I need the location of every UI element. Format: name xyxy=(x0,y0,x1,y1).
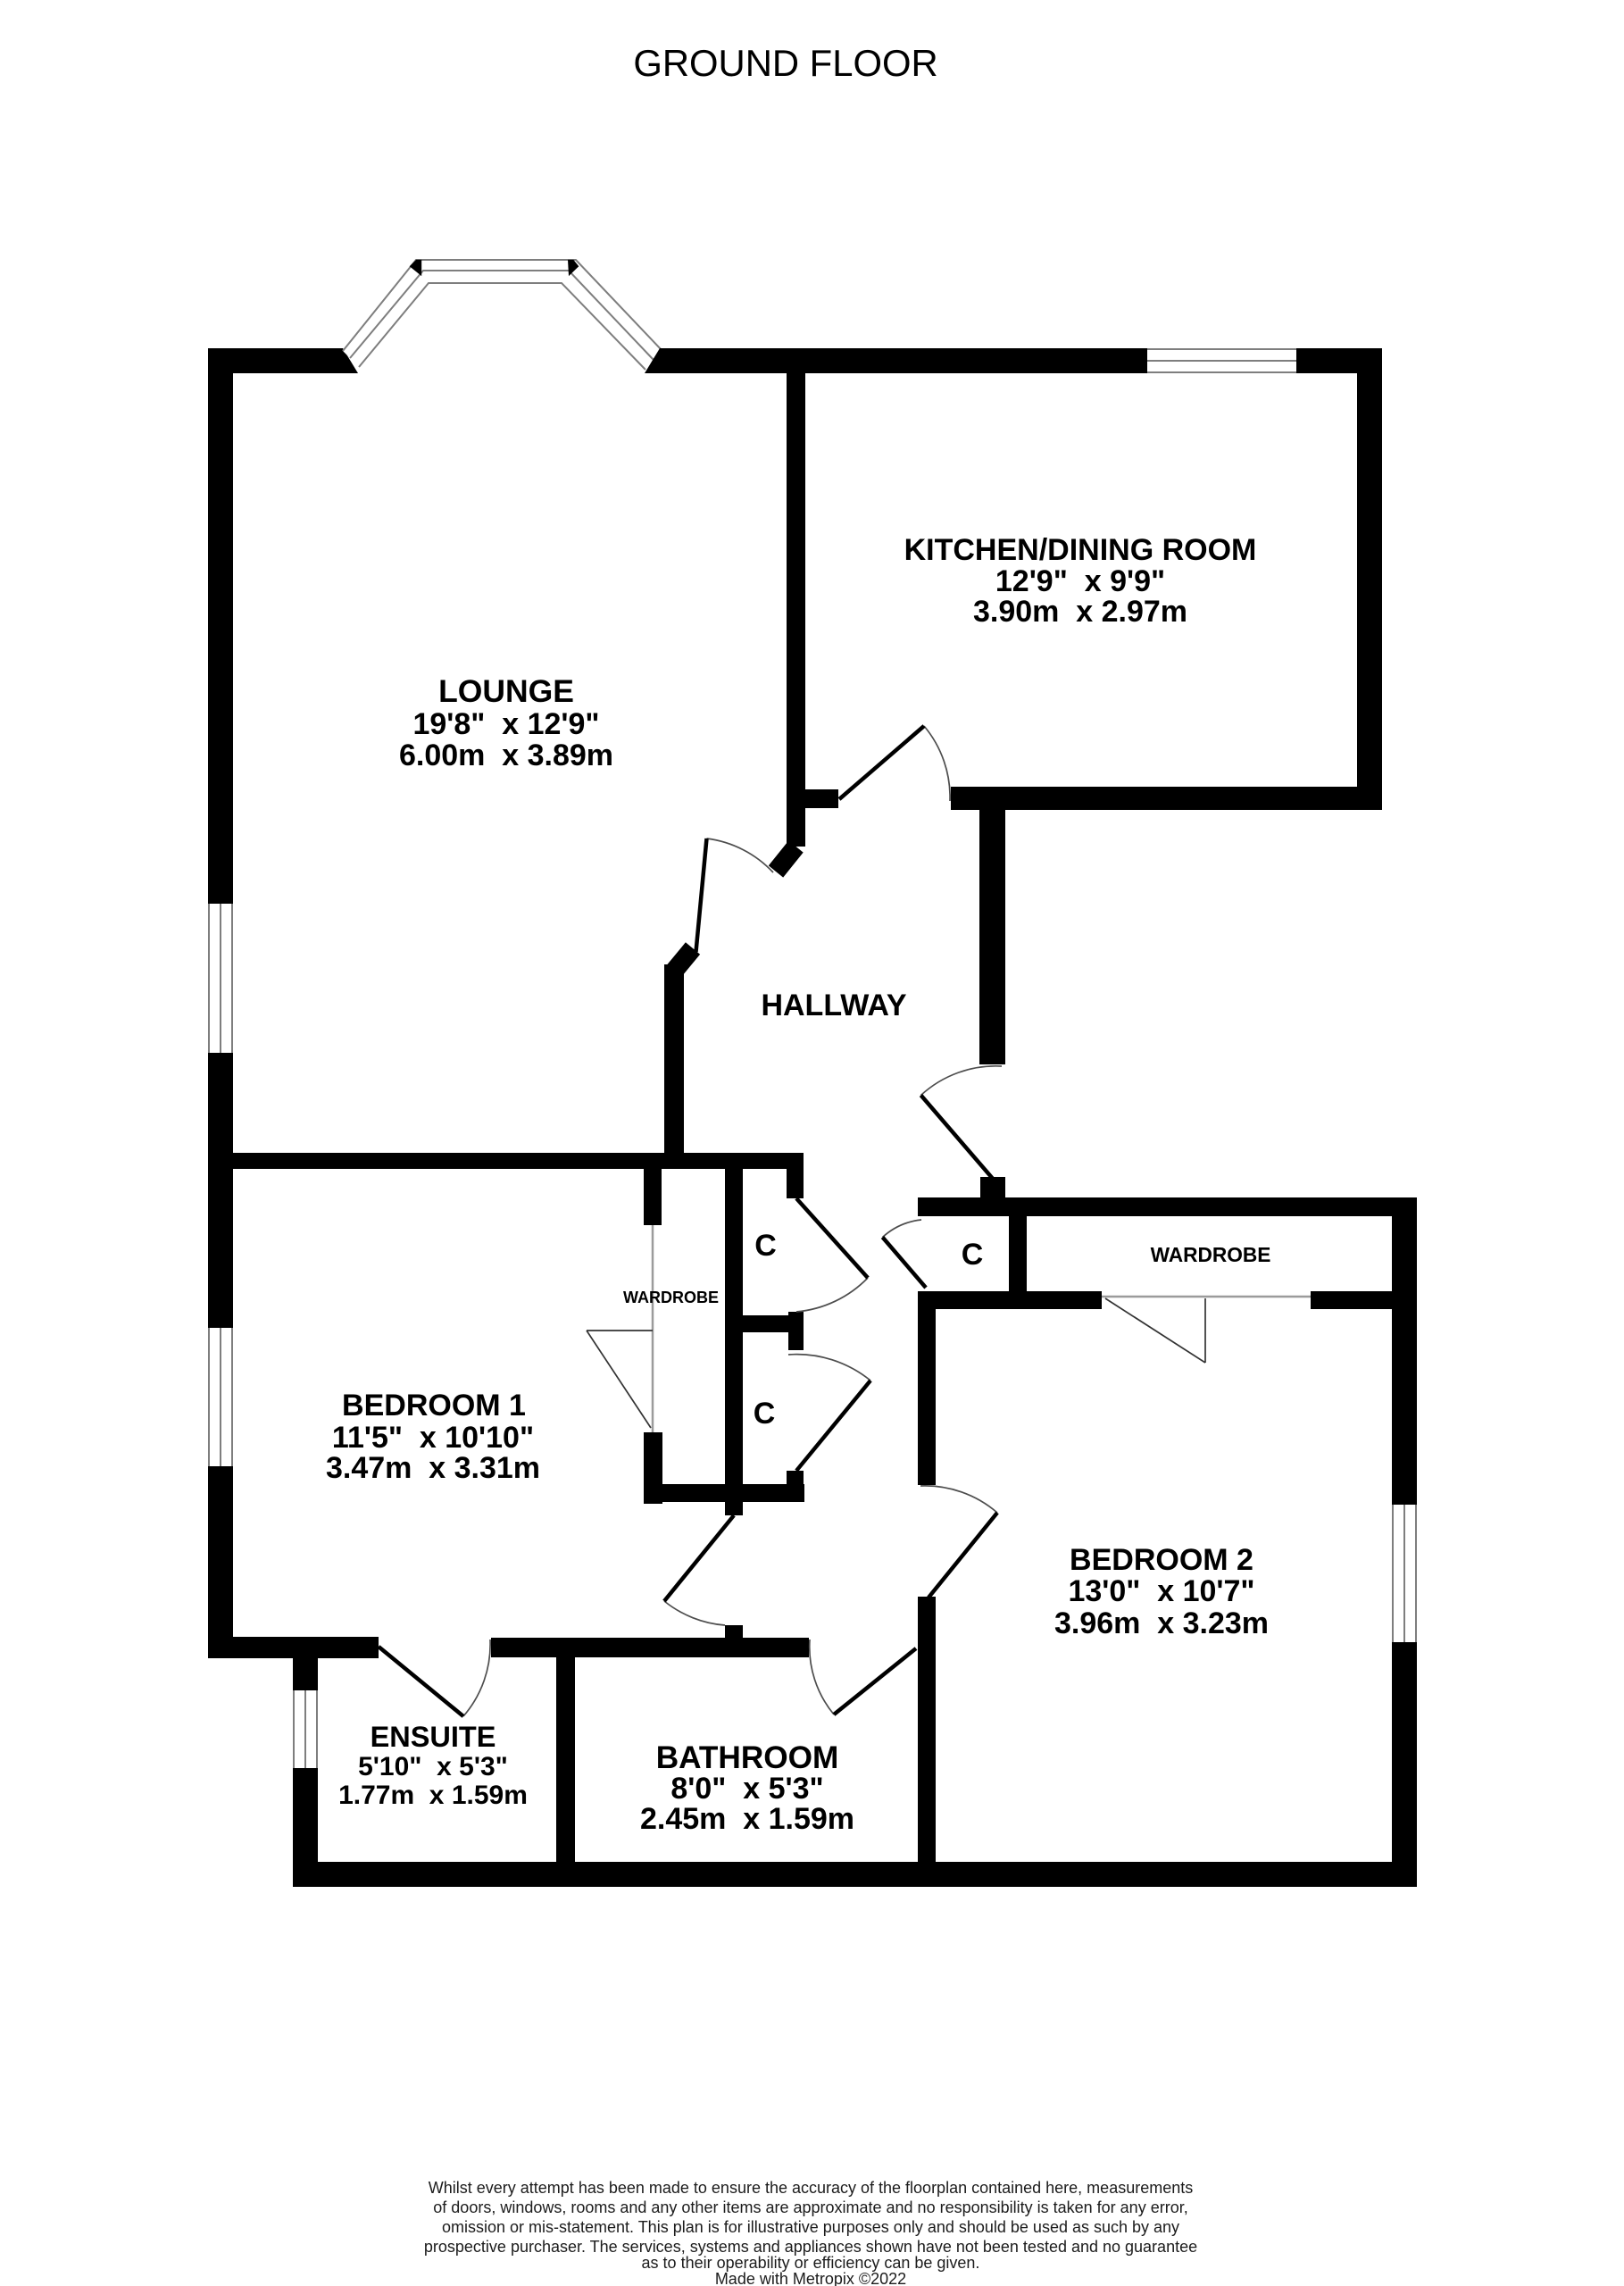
svg-text:2.45m x 1.59m: 2.45m x 1.59m xyxy=(640,1802,854,1836)
svg-text:C: C xyxy=(754,1229,777,1263)
svg-text:Made with Metropix ©2022: Made with Metropix ©2022 xyxy=(715,2270,906,2286)
svg-text:as to their operability or eff: as to their operability or efficiency ca… xyxy=(642,2254,980,2272)
svg-text:3.90m x 2.97m: 3.90m x 2.97m xyxy=(973,595,1187,629)
svg-text:BATHROOM: BATHROOM xyxy=(656,1740,839,1775)
svg-text:6.00m x 3.89m: 6.00m x 3.89m xyxy=(399,738,613,772)
svg-text:3.47m x 3.31m: 3.47m x 3.31m xyxy=(326,1451,540,1485)
svg-text:Whilst every attempt has been: Whilst every attempt has been made to en… xyxy=(429,2179,1193,2197)
svg-text:prospective purchaser. The ser: prospective purchaser. The services, sys… xyxy=(424,2238,1197,2256)
svg-text:ENSUITE: ENSUITE xyxy=(371,1721,496,1753)
svg-text:GROUND FLOOR: GROUND FLOOR xyxy=(633,42,937,84)
svg-text:WARDROBE: WARDROBE xyxy=(1151,1243,1271,1266)
svg-text:19'8" x 12'9": 19'8" x 12'9" xyxy=(412,707,599,741)
svg-text:8'0" x 5'3": 8'0" x 5'3" xyxy=(670,1772,823,1806)
svg-text:KITCHEN/DINING ROOM: KITCHEN/DINING ROOM xyxy=(904,533,1257,567)
svg-text:5'10" x 5'3": 5'10" x 5'3" xyxy=(358,1752,508,1781)
svg-text:12'9" x 9'9": 12'9" x 9'9" xyxy=(995,564,1165,598)
svg-text:BEDROOM 1: BEDROOM 1 xyxy=(342,1389,526,1422)
svg-text:LOUNGE: LOUNGE xyxy=(438,673,574,709)
svg-text:WARDROBE: WARDROBE xyxy=(623,1289,719,1306)
svg-text:C: C xyxy=(754,1397,776,1431)
svg-text:3.96m x 3.23m: 3.96m x 3.23m xyxy=(1054,1606,1269,1640)
svg-text:11'5" x 10'10": 11'5" x 10'10" xyxy=(332,1421,534,1455)
svg-text:of doors, windows, rooms and a: of doors, windows, rooms and any other i… xyxy=(433,2198,1187,2216)
svg-text:HALLWAY: HALLWAY xyxy=(761,989,906,1022)
svg-text:C: C xyxy=(962,1238,984,1272)
svg-text:13'0" x 10'7": 13'0" x 10'7" xyxy=(1068,1574,1254,1608)
svg-text:omission or mis-statement. Thi: omission or mis-statement. This plan is … xyxy=(442,2218,1179,2236)
svg-text:1.77m x 1.59m: 1.77m x 1.59m xyxy=(338,1781,528,1810)
svg-text:BEDROOM 2: BEDROOM 2 xyxy=(1070,1543,1253,1577)
